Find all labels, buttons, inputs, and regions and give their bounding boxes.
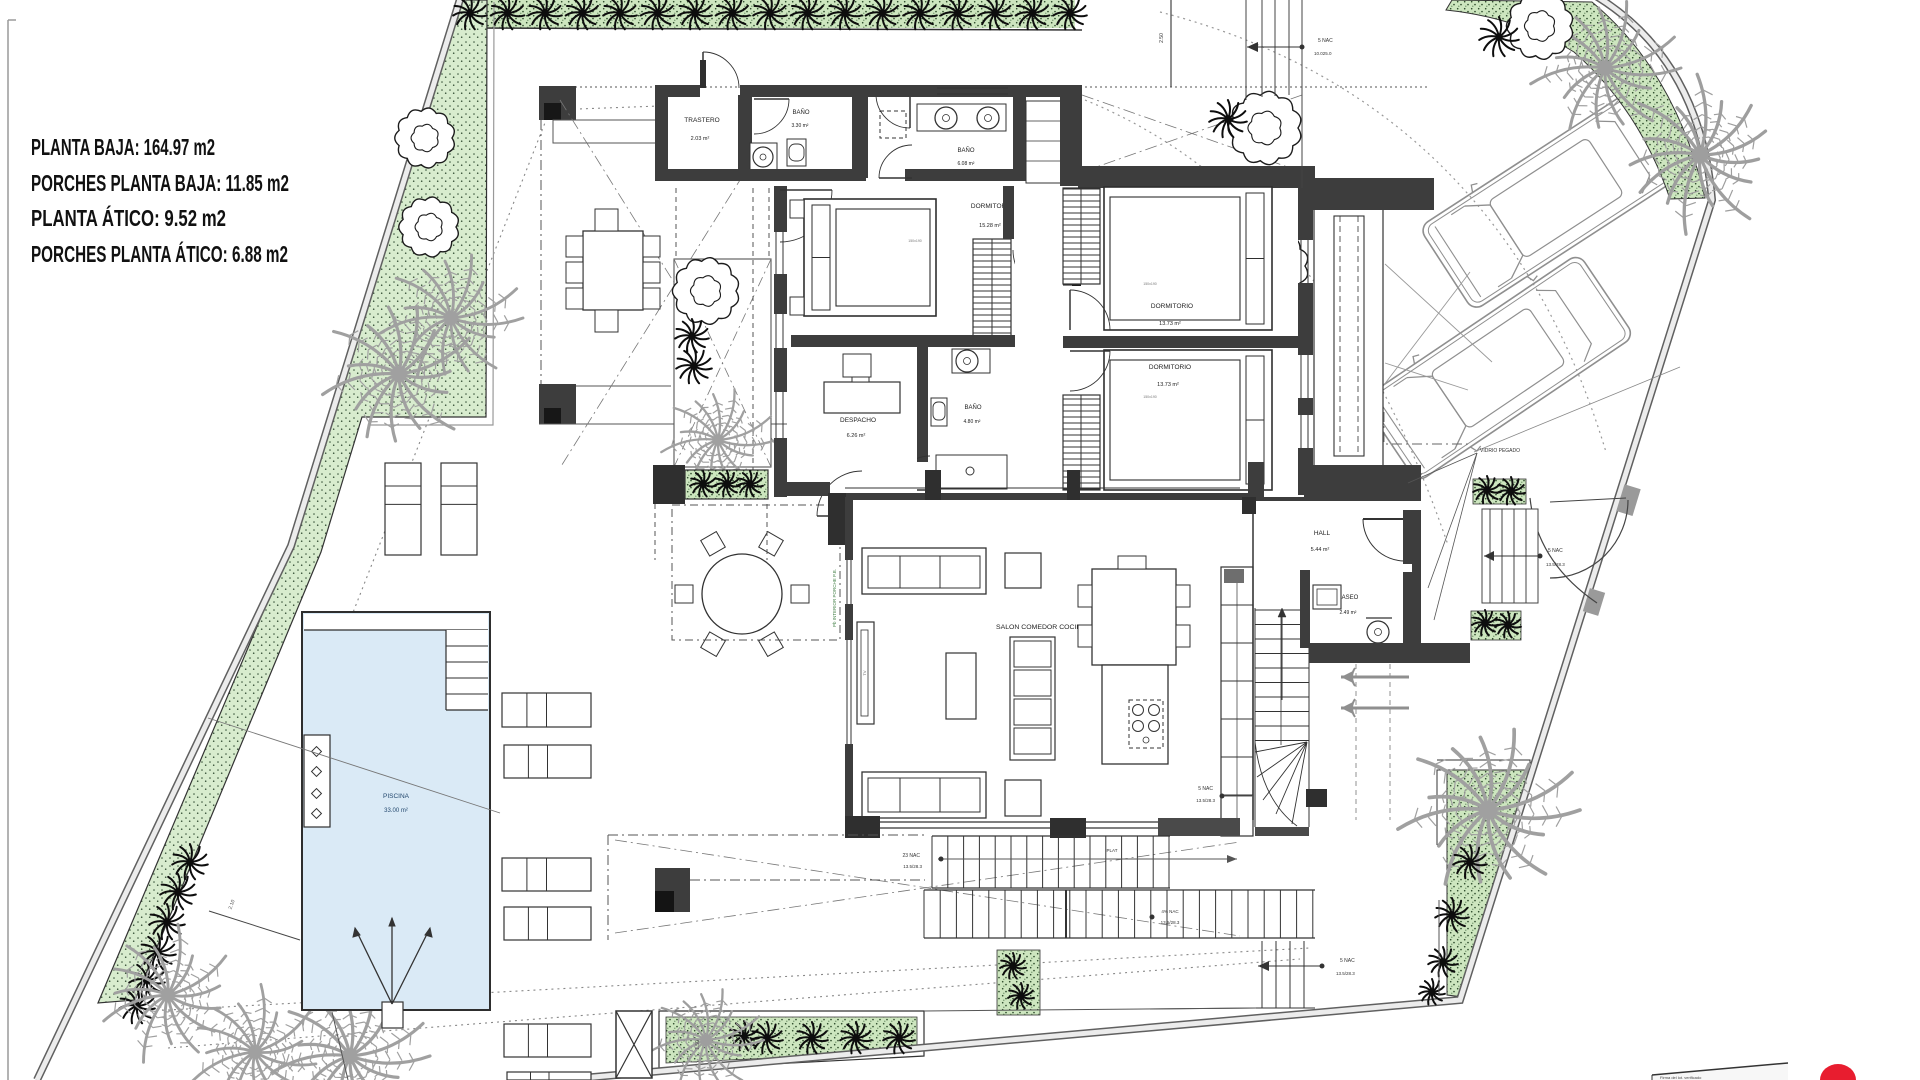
- svg-text:6.26 m²: 6.26 m²: [847, 433, 866, 439]
- svg-text:PLANTA ÁTICO: 9.52 m2: PLANTA ÁTICO: 9.52 m2: [31, 204, 226, 231]
- svg-text:13.73 m²: 13.73 m²: [1157, 382, 1179, 388]
- svg-text:2.50: 2.50: [1159, 33, 1165, 43]
- svg-text:13.5/28.3: 13.5/28.3: [1161, 920, 1180, 925]
- svg-text:4% NAC: 4% NAC: [1161, 909, 1179, 914]
- svg-text:150x190: 150x190: [908, 239, 921, 243]
- svg-text:BAÑO: BAÑO: [964, 404, 981, 411]
- svg-text:TRASTERO: TRASTERO: [684, 117, 719, 124]
- svg-text:PLAT: PLAT: [1107, 848, 1118, 853]
- svg-text:ASEO: ASEO: [1342, 595, 1359, 601]
- svg-text:BAÑO: BAÑO: [792, 109, 809, 116]
- svg-text:3.30 m²: 3.30 m²: [792, 123, 809, 129]
- svg-text:Firma del lot. verificado: Firma del lot. verificado: [1660, 1075, 1702, 1080]
- svg-text:5 NAC: 5 NAC: [1198, 786, 1213, 792]
- svg-text:PLANTA BAJA: 164.97 m2: PLANTA BAJA: 164.97 m2: [31, 134, 215, 160]
- svg-text:PISCINA: PISCINA: [383, 793, 410, 800]
- svg-text:PORCHES PLANTA ÁTICO: 6.88 m2: PORCHES PLANTA ÁTICO: 6.88 m2: [31, 240, 288, 267]
- svg-text:150x190: 150x190: [1143, 282, 1156, 286]
- svg-text:33.00 m²: 33.00 m²: [384, 808, 408, 814]
- svg-text:10.025.0: 10.025.0: [1314, 51, 1332, 56]
- svg-text:HALL: HALL: [1314, 530, 1331, 537]
- svg-text:13.5/28.3: 13.5/28.3: [1196, 798, 1215, 803]
- svg-text:5 NAC: 5 NAC: [1340, 958, 1355, 964]
- svg-text:5.44 m²: 5.44 m²: [1311, 547, 1330, 553]
- svg-text:23 NAC: 23 NAC: [902, 853, 920, 859]
- svg-text:6.08 m²: 6.08 m²: [958, 161, 975, 167]
- svg-text:Pb INTERIOR PORCHE P.B.: Pb INTERIOR PORCHE P.B.: [832, 569, 837, 627]
- svg-text:5 NAC: 5 NAC: [1318, 38, 1333, 44]
- svg-text:13.5/28.3: 13.5/28.3: [903, 864, 922, 869]
- svg-text:BAÑO: BAÑO: [957, 147, 974, 154]
- svg-text:15.28 m²: 15.28 m²: [979, 223, 1001, 229]
- svg-text:DESPACHO: DESPACHO: [840, 417, 876, 424]
- svg-text:TV: TV: [862, 670, 867, 675]
- svg-text:PORCHES PLANTA BAJA: 11.85 m2: PORCHES PLANTA BAJA: 11.85 m2: [31, 170, 289, 196]
- svg-text:SALON COMEDOR COCINA: SALON COMEDOR COCINA: [996, 624, 1087, 631]
- svg-text:DORMITORIO: DORMITORIO: [1149, 364, 1191, 371]
- svg-text:1.50: 1.50: [695, 1040, 701, 1050]
- svg-text:5 NAC: 5 NAC: [1548, 548, 1563, 554]
- svg-text:4.80 m²: 4.80 m²: [964, 419, 981, 425]
- svg-text:2.49 m²: 2.49 m²: [1340, 610, 1357, 616]
- svg-text:13.73 m²: 13.73 m²: [1159, 321, 1181, 327]
- svg-text:DORMITORIO: DORMITORIO: [1151, 303, 1193, 310]
- svg-text:2.03 m²: 2.03 m²: [691, 136, 710, 142]
- svg-text:VIDRIO PEGADO: VIDRIO PEGADO: [1480, 448, 1520, 454]
- svg-text:13.5/28.3: 13.5/28.3: [1546, 562, 1565, 567]
- svg-text:150x190: 150x190: [1143, 395, 1156, 399]
- svg-text:13.5/28.3: 13.5/28.3: [1336, 971, 1355, 976]
